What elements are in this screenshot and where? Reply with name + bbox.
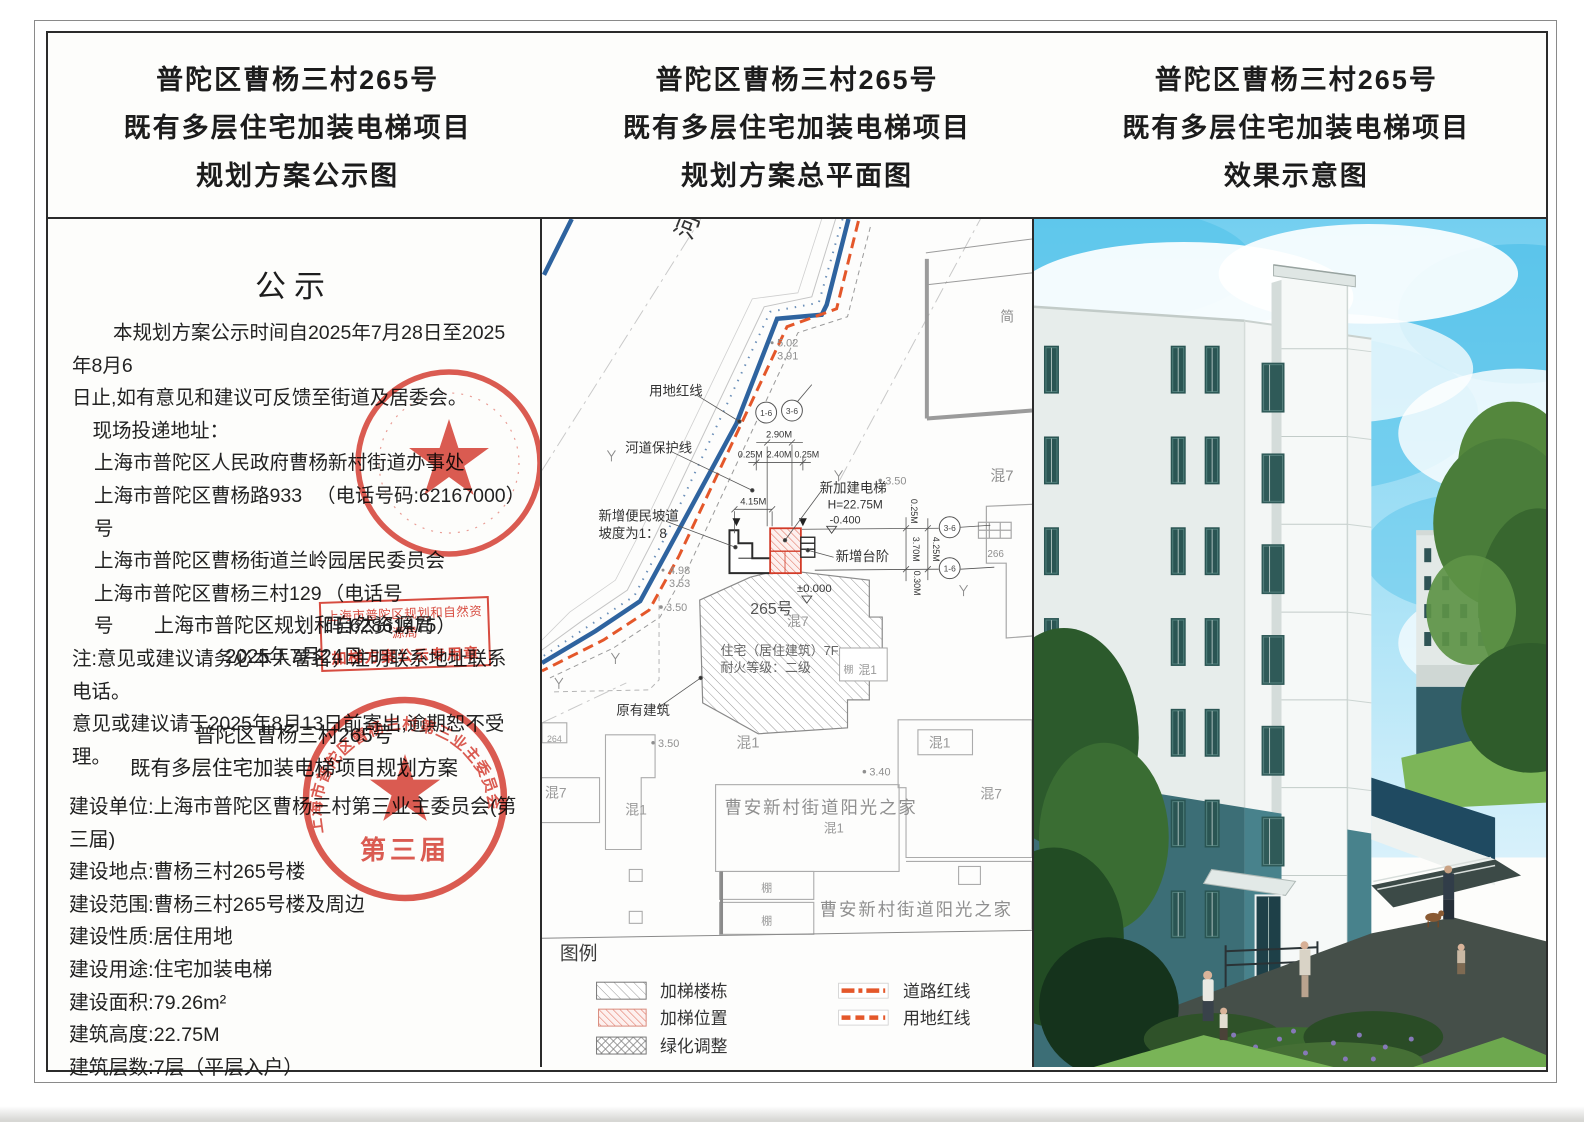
label-shed: 棚 [761, 880, 772, 894]
dim-025: 0.25M [738, 449, 763, 459]
svg-text:5.02: 5.02 [777, 338, 798, 350]
header-left-line1: 普陀区曹杨三村265号 [156, 58, 439, 97]
pedestrian-child [1220, 1008, 1228, 1040]
header-middle-line1: 普陀区曹杨三村265号 [655, 58, 938, 97]
dim-415: 4.15M [740, 496, 766, 507]
address-row: 上海市普陀区曹杨街道兰岭园居民委员会 [72, 545, 520, 578]
header-middle-line2: 既有多层住宅加装电梯项目 [623, 106, 971, 145]
label-hun1: 混1 [736, 735, 759, 752]
project-info-item: 建设范围:曹杨三村265号楼及周边 [69, 889, 529, 922]
pedestrian-child [1457, 944, 1465, 974]
dim-425: 4.25M [931, 537, 941, 562]
dim-290: 2.90M [766, 429, 792, 440]
svg-text:3.50: 3.50 [658, 738, 679, 750]
header-right-line3: 效果示意图 [1224, 154, 1369, 193]
label-sunshine-home: 曹安新村街道阳光之家 [725, 798, 918, 818]
project-info-item: 建筑层数:7层（平层入户） [69, 1052, 529, 1085]
legend-label: 绿化调整 [660, 1037, 728, 1056]
label-elev-height: H=22.75M [828, 497, 883, 511]
elevator-position [770, 528, 801, 573]
legend-label: 加梯位置 [660, 1009, 727, 1028]
dim-025: 0.25M [909, 499, 919, 524]
notice-sheet: 普陀区曹杨三村265号 既有多层住宅加装电梯项目 规划方案公示图 普陀区曹杨三村… [0, 0, 1584, 1122]
header-left-line2: 既有多层住宅加装电梯项目 [124, 106, 472, 145]
project-info-item: 建设性质:居住用地 [69, 921, 529, 954]
axis-label: 3-6 [786, 406, 798, 416]
svg-text:3.91: 3.91 [777, 351, 798, 363]
header-right-line1: 普陀区曹杨三村265号 [1155, 58, 1438, 97]
dim-240: 2.40M [767, 449, 792, 459]
address-row: 上海市普陀区曹杨路933号 （电话号码:62167000） [72, 480, 520, 545]
project-info-list: 建设单位:上海市普陀区曹杨三村第三业主委员会(第三届) 建设地点:曹杨三村265… [69, 791, 529, 1084]
svg-text:4.98: 4.98 [669, 565, 690, 577]
address-name: 上海市普陀区人民政府曹杨新村街道办事处 [94, 447, 465, 480]
notice-body: 本规划方案公示时间自2025年7月28日至2025年8月6 日止,如有意见和建议… [72, 317, 520, 773]
legend-swatch-cross [597, 1037, 647, 1054]
svg-text:3.53: 3.53 [669, 578, 690, 590]
label-sunshine-home: 曹安新村街道阳光之家 [820, 899, 1013, 919]
label-zero-level: ±0.000 [797, 583, 832, 595]
project-title: 普陀区曹杨三村265号 既有多层住宅加装电梯项目规划方案 [48, 719, 540, 785]
panel-public-notice: 公示 本规划方案公示时间自2025年7月28日至2025年8月6 日止,如有意见… [48, 219, 540, 1067]
project-info-item: 建设地点:曹杨三村265号楼 [69, 856, 529, 889]
label-existing-building: 原有建筑 [616, 703, 670, 718]
label-land-redline: 用地红线 [649, 384, 702, 399]
svg-text:3.40: 3.40 [869, 767, 890, 779]
header-middle: 普陀区曹杨三村265号 既有多层住宅加装电梯项目 规划方案总平面图 [547, 33, 1046, 217]
paper-edge [0, 1106, 1584, 1122]
label-shed: 棚 [761, 913, 772, 927]
header-right: 普陀区曹杨三村265号 既有多层住宅加装电梯项目 效果示意图 [1047, 33, 1546, 217]
label-hun7: 混7 [990, 467, 1013, 484]
header-right-line2: 既有多层住宅加装电梯项目 [1122, 106, 1470, 145]
rect-stamp-line1: 上海市普陀区规划和自然资源局 [321, 600, 488, 644]
header-left: 普陀区曹杨三村265号 既有多层住宅加装电梯项目 规划方案公示图 [48, 33, 547, 217]
axis-label: 1-6 [760, 408, 772, 418]
label-residence: 住宅（居住建筑）7F [721, 643, 839, 658]
label-hun7: 混7 [980, 786, 1002, 802]
project-info-item: 建设单位:上海市普陀区曹杨三村第三业主委员会(第三届) [69, 791, 529, 856]
notice-heading: 公示 [48, 261, 540, 306]
legend-swatch-hatch [597, 982, 647, 999]
label-new-steps: 新增台阶 [836, 549, 889, 564]
legend-label: 加梯楼栋 [660, 982, 728, 1001]
notice-paragraph-line: 本规划方案公示时间自2025年7月28日至2025年8月6 [72, 317, 520, 382]
pedestrian-man-suit [1443, 865, 1454, 919]
site-plan-drawing: 河 简 266 混7 [542, 219, 1032, 1067]
label-fire-grade: 耐火等级：二级 [721, 660, 811, 675]
label-hun1: 混1 [824, 821, 844, 836]
legend-swatch-red [599, 1009, 647, 1026]
label-shed: 棚 [844, 663, 854, 676]
rect-stamp: 上海市普陀区规划和自然资源局 加梯方案公示专用章 [319, 596, 491, 672]
svg-text:3.50: 3.50 [885, 475, 906, 487]
label-elev-neg: -0.400 [830, 514, 861, 526]
legend-title: 图例 [560, 942, 598, 964]
notice-paragraph-line: 日止,如有意见和建议可反馈至街道及居委会。 [72, 382, 520, 415]
label-hun7: 混7 [545, 785, 567, 801]
label-ramp-line1: 新增便民坡道 [599, 508, 679, 523]
axis-label: 1-6 [944, 564, 956, 574]
header-left-line3: 规划方案公示图 [196, 154, 399, 193]
panel-rendering [1034, 219, 1546, 1067]
header-row: 普陀区曹杨三村265号 既有多层住宅加装电梯项目 规划方案公示图 普陀区曹杨三村… [48, 33, 1546, 219]
legend-label: 用地红线 [903, 1009, 971, 1028]
address-name: 上海市普陀区曹杨街道兰岭园居民委员会 [94, 545, 445, 578]
label-hun1: 混1 [625, 802, 647, 818]
label-jian: 简 [1000, 309, 1014, 325]
project-title-line1: 普陀区曹杨三村265号 [48, 719, 540, 752]
notice-paragraph-line: 现场投递地址： [72, 415, 520, 448]
label-hun1: 混1 [858, 663, 877, 677]
new-steps-structure [801, 537, 815, 557]
label-264: 264 [547, 734, 562, 744]
project-title-line2: 既有多层住宅加装电梯项目规划方案 [48, 752, 540, 785]
dim-370: 3.70M [911, 537, 921, 562]
sheet-inner-border: 普陀区曹杨三村265号 既有多层住宅加装电梯项目 规划方案公示图 普陀区曹杨三村… [46, 31, 1548, 1072]
address-phone: （电话号码:62167000） [316, 480, 520, 545]
panel-site-plan: 河 简 266 混7 [540, 219, 1034, 1067]
label-new-elevator: 新加建电梯 [820, 480, 887, 495]
axis-label: 3-6 [944, 523, 956, 533]
dim-030: 0.30M [912, 571, 922, 596]
address-row: 上海市普陀区人民政府曹杨新村街道办事处 [72, 447, 520, 480]
label-ramp-line2: 坡度为1：8 [599, 526, 667, 541]
address-name: 上海市普陀区曹杨路933号 [94, 480, 316, 545]
label-river-protect: 河道保护线 [625, 440, 692, 455]
project-info-item: 建设面积:79.26m² [69, 987, 529, 1020]
dim-025: 0.25M [794, 449, 819, 459]
rect-stamp-line2: 加梯方案公示专用章 [322, 642, 489, 669]
label-hun7: 混7 [787, 613, 809, 629]
project-info-item: 建设用途:住宅加装电梯 [69, 954, 529, 987]
label-266: 266 [987, 549, 1004, 560]
legend-label: 道路红线 [903, 982, 971, 1001]
header-middle-line3: 规划方案总平面图 [681, 154, 913, 193]
svg-text:3.50: 3.50 [666, 602, 687, 614]
label-hun1: 混1 [929, 735, 951, 751]
rendering-image [1034, 219, 1546, 1067]
project-info-item: 建筑高度:22.75M [69, 1019, 529, 1052]
